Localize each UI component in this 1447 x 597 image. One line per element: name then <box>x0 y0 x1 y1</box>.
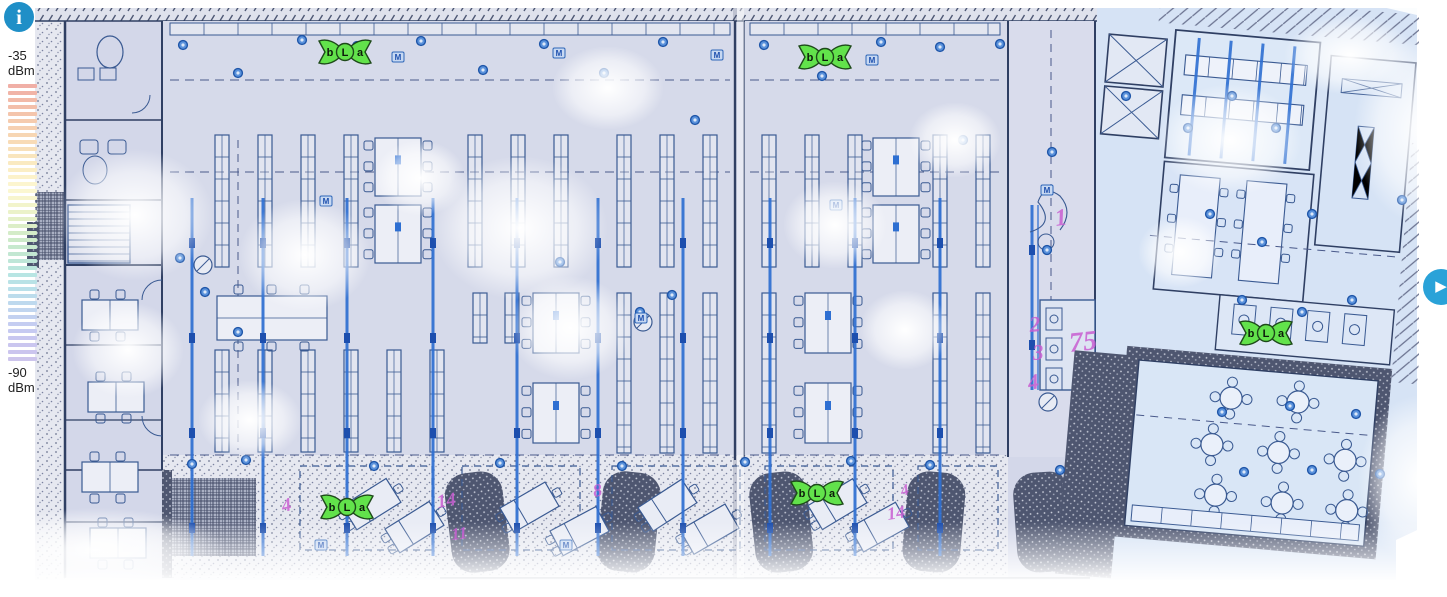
ap-band-label: L <box>814 488 821 500</box>
ap-marker[interactable]: bLa <box>321 495 373 519</box>
ap-band-label: b <box>329 502 336 514</box>
chevron-right-icon: ▶ <box>1435 278 1447 295</box>
ap-marker[interactable]: bLa <box>791 481 843 505</box>
ap-band-label: b <box>1248 328 1255 340</box>
survey-annotation: 2 <box>1027 311 1041 337</box>
survey-annotation: 11 <box>450 523 469 544</box>
svg-text:M: M <box>556 49 563 58</box>
ap-band-label: a <box>1278 328 1285 340</box>
ap-band-label: L <box>1263 328 1270 340</box>
ap-band-label: a <box>359 502 366 514</box>
ap-band-label: b <box>799 488 806 500</box>
ap-band-label: a <box>837 52 844 64</box>
svg-text:M: M <box>714 51 721 60</box>
ap-marker[interactable]: bLa <box>1240 321 1292 345</box>
legend-max-unit: dBm <box>8 63 44 78</box>
ap-marker[interactable]: bLa <box>799 45 851 69</box>
ap-band-label: b <box>327 47 334 59</box>
svg-text:M: M <box>1044 186 1051 195</box>
ap-band-label: a <box>829 488 836 500</box>
survey-annotation: 14 <box>885 501 906 524</box>
wifi-survey-viewer: MMMMMMMMMM123475414118144bLabLabLabLabLa… <box>0 0 1447 597</box>
legend-min-unit: dBm <box>8 380 44 395</box>
signal-scale <box>8 84 37 361</box>
legend-min-label: -90 dBm <box>8 365 44 395</box>
legend-min-value: -90 <box>8 365 44 380</box>
svg-text:M: M <box>869 56 876 65</box>
ap-band-label: L <box>822 52 829 64</box>
legend-max-value: -35 <box>8 48 44 63</box>
ap-marker[interactable]: bLa <box>319 40 371 64</box>
ap-band-label: b <box>807 52 814 64</box>
ap-band-label: a <box>357 47 364 59</box>
legend-max-label: -35 dBm <box>8 48 44 78</box>
svg-text:M: M <box>395 53 402 62</box>
floorplan-map[interactable]: MMMMMMMMMM123475414118144bLabLabLabLabLa <box>0 0 1447 597</box>
ap-band-label: L <box>344 502 351 514</box>
info-icon[interactable]: i <box>4 2 34 32</box>
signal-legend: i -35 dBm -90 dBm <box>4 2 44 395</box>
svg-text:M: M <box>638 314 645 323</box>
survey-annotation: 14 <box>435 489 457 513</box>
survey-annotation: 3 <box>1031 339 1045 365</box>
survey-annotation: 75 <box>1067 325 1098 359</box>
ap-band-label: L <box>342 47 349 59</box>
